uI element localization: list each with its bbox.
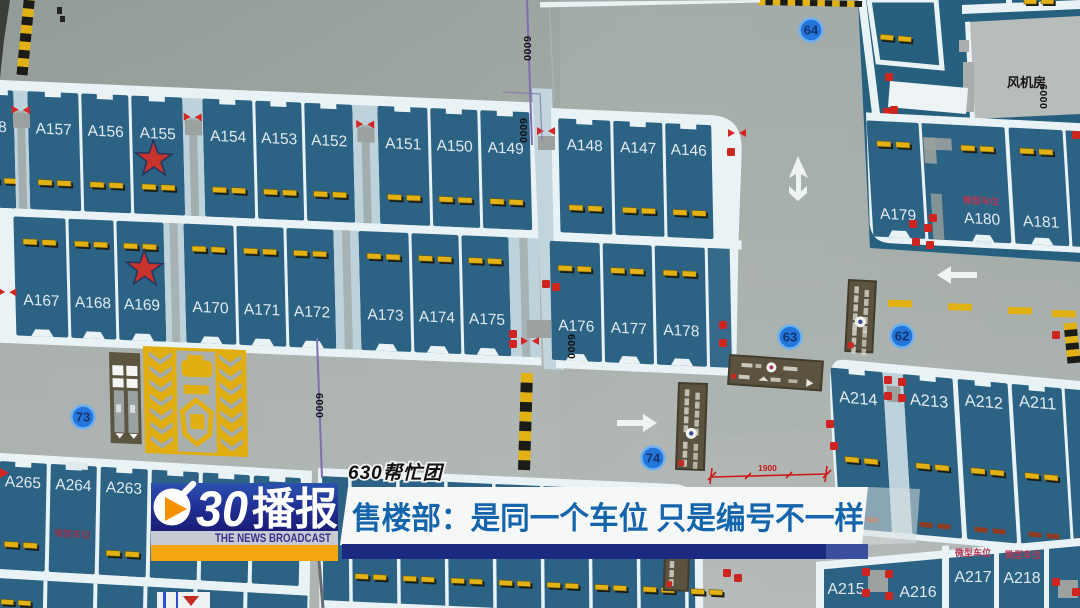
svg-text:A150: A150: [436, 137, 473, 156]
svg-text:64: 64: [804, 23, 819, 38]
svg-text:微型车位: 微型车位: [53, 527, 90, 540]
svg-text:A174: A174: [419, 308, 456, 327]
svg-text:A213: A213: [909, 390, 949, 412]
svg-text:63: 63: [783, 330, 797, 345]
svg-text:A217: A217: [954, 569, 991, 586]
svg-text:A264: A264: [55, 476, 92, 495]
svg-text:A178: A178: [663, 322, 700, 341]
svg-text:6000: 6000: [517, 118, 529, 143]
svg-text:A146: A146: [670, 141, 707, 160]
svg-text:A151: A151: [385, 135, 422, 154]
svg-text:6000: 6000: [521, 36, 533, 61]
svg-text:A173: A173: [367, 306, 404, 325]
svg-text:A155: A155: [139, 125, 176, 144]
svg-text:30: 30: [196, 481, 248, 537]
svg-text:A172: A172: [294, 303, 331, 322]
svg-text:A148: A148: [566, 137, 603, 156]
svg-text:A-081: A-081: [975, 239, 993, 247]
svg-text:6000: 6000: [313, 393, 325, 418]
svg-text:6000: 6000: [1037, 84, 1049, 109]
svg-text:播报: 播报: [252, 485, 338, 534]
svg-text:A215: A215: [827, 581, 864, 598]
svg-text:73: 73: [76, 410, 90, 425]
svg-text:A156: A156: [87, 123, 124, 142]
svg-text:62: 62: [895, 329, 909, 344]
svg-text:A168: A168: [75, 294, 112, 313]
svg-text:6000: 6000: [565, 334, 577, 359]
svg-text:A157: A157: [35, 120, 72, 139]
svg-text:A176: A176: [558, 317, 595, 336]
svg-text:THE NEWS BROADCAST: THE NEWS BROADCAST: [215, 533, 331, 545]
svg-text:微型车位: 微型车位: [962, 194, 1000, 207]
svg-text:A216: A216: [899, 584, 936, 601]
svg-text:A170: A170: [192, 299, 229, 318]
svg-text:A181: A181: [1022, 213, 1059, 232]
svg-text:1900: 1900: [758, 463, 777, 473]
svg-text:A263: A263: [106, 479, 143, 498]
svg-text:A169: A169: [124, 296, 161, 315]
svg-text:A265: A265: [5, 473, 42, 492]
svg-text:售楼部：是同一个车位 只是编号不一样: 售楼部：是同一个车位 只是编号不一样: [352, 501, 864, 536]
svg-text:A218: A218: [1003, 570, 1040, 587]
svg-text:A212: A212: [964, 391, 1004, 413]
svg-text:A171: A171: [244, 301, 281, 320]
svg-text:A167: A167: [23, 292, 60, 311]
svg-text:A211: A211: [1018, 391, 1056, 413]
svg-text:微型车位: 微型车位: [954, 547, 991, 558]
svg-text:A214: A214: [838, 387, 878, 409]
svg-text:8: 8: [0, 119, 7, 136]
svg-text:A175: A175: [469, 310, 506, 329]
svg-text:A177: A177: [611, 320, 648, 339]
svg-text:74: 74: [646, 451, 661, 466]
svg-text:A180: A180: [963, 210, 1001, 229]
svg-text:微型车位: 微型车位: [1004, 549, 1041, 560]
svg-text:A154: A154: [210, 128, 247, 147]
svg-text:630帮忙团: 630帮忙团: [348, 462, 445, 484]
svg-text:A153: A153: [261, 130, 298, 149]
svg-text:A152: A152: [311, 132, 348, 151]
svg-text:A147: A147: [620, 139, 657, 158]
